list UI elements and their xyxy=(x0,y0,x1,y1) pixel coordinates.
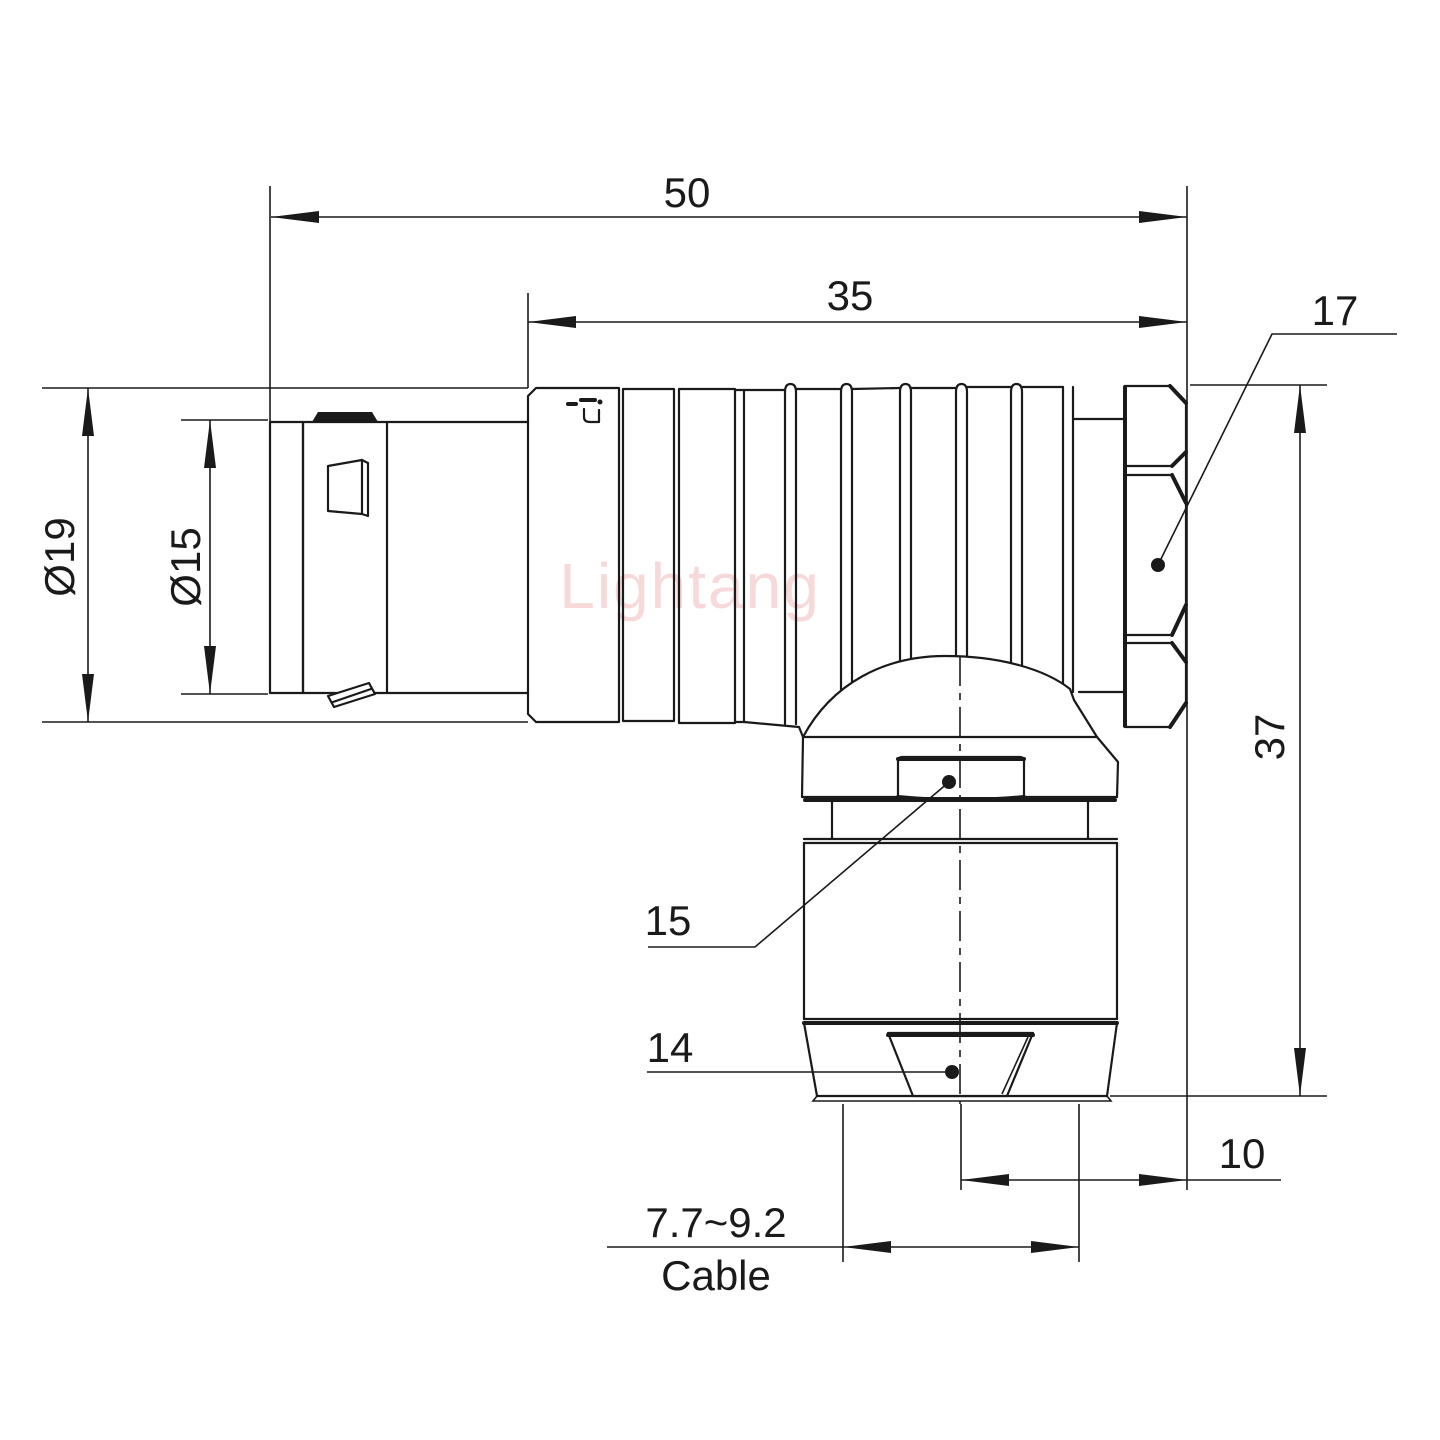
label-body-length: 35 xyxy=(827,272,874,319)
dim-outer-diameter: Ø19 xyxy=(36,388,528,722)
dim-cable-range: 7.7~9.2 Cable xyxy=(607,1104,1079,1299)
elbow-dome xyxy=(803,656,1097,737)
dim-axis-to-back: 10 xyxy=(961,1104,1281,1190)
collar-flat-window xyxy=(898,757,1024,797)
label-cable-range: 7.7~9.2 xyxy=(645,1199,786,1246)
label-total-height: 37 xyxy=(1246,714,1293,761)
leader-hex-nut-flats: 17 xyxy=(1151,287,1397,572)
elbow-section xyxy=(802,656,1118,1104)
label-cable-caption: Cable xyxy=(661,1252,771,1299)
drawing-canvas: Lightang xyxy=(0,0,1440,1440)
label-axis-to-back: 10 xyxy=(1219,1130,1266,1177)
dim-mating-diameter: Ø15 xyxy=(162,420,268,694)
label-collar-flats: 15 xyxy=(645,897,692,944)
clamp-nut-top xyxy=(804,839,1117,843)
hex-nut xyxy=(1125,386,1186,727)
dim-body-length: 35 xyxy=(528,272,1187,388)
label-hex-nut-flats: 17 xyxy=(1312,287,1359,334)
technical-drawing: Lightang xyxy=(0,0,1440,1440)
watermark-text: Lightang xyxy=(559,550,821,622)
front-mating-section xyxy=(270,412,528,707)
label-overall-length: 50 xyxy=(664,169,711,216)
connector-outline xyxy=(270,384,1186,1104)
latch-bump xyxy=(312,412,378,422)
engraved-logo xyxy=(568,400,603,423)
label-mating-diameter: Ø15 xyxy=(162,527,209,606)
key-window xyxy=(328,460,362,514)
hex-nut-outline xyxy=(1125,386,1186,727)
label-clamp-nut-flats: 14 xyxy=(647,1024,694,1071)
label-outer-diameter: Ø19 xyxy=(36,517,83,596)
front-rim xyxy=(270,422,303,693)
